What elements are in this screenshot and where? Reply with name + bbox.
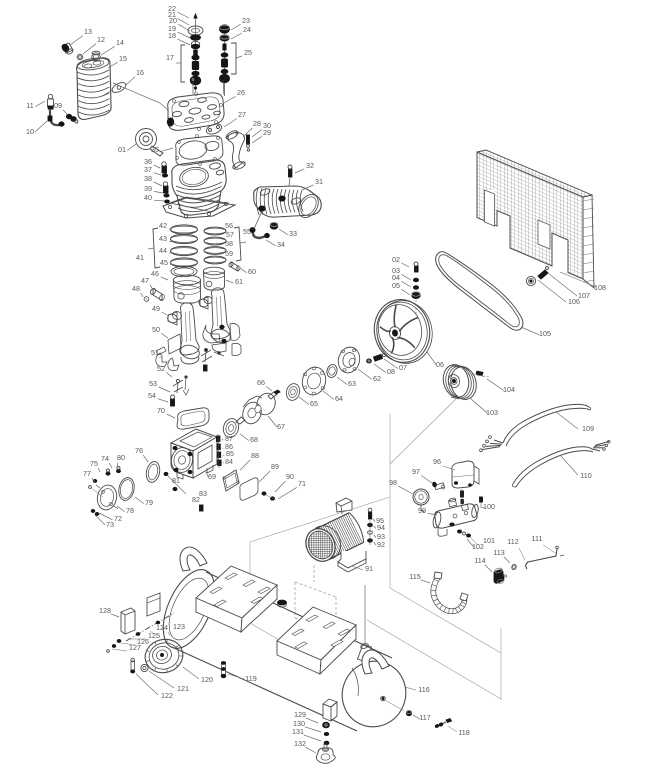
svg-text:50: 50 — [152, 325, 160, 334]
svg-text:80: 80 — [117, 453, 125, 462]
svg-text:101: 101 — [483, 536, 495, 545]
svg-text:113: 113 — [493, 548, 504, 557]
svg-text:122: 122 — [161, 691, 173, 700]
svg-text:46: 46 — [151, 269, 159, 278]
svg-text:119: 119 — [245, 674, 256, 683]
svg-text:71: 71 — [298, 479, 306, 488]
svg-text:61: 61 — [235, 277, 243, 286]
svg-text:10: 10 — [26, 127, 34, 136]
svg-text:116: 116 — [418, 685, 429, 694]
svg-text:100: 100 — [483, 502, 495, 511]
svg-text:72: 72 — [114, 514, 122, 523]
svg-text:81: 81 — [172, 476, 180, 485]
svg-text:98: 98 — [389, 478, 397, 487]
svg-text:92: 92 — [377, 540, 385, 549]
svg-text:07: 07 — [399, 363, 407, 372]
svg-text:39: 39 — [144, 184, 152, 193]
svg-text:55: 55 — [243, 227, 251, 236]
svg-text:118: 118 — [458, 728, 469, 737]
svg-text:35: 35 — [151, 145, 159, 154]
svg-text:78: 78 — [126, 506, 134, 515]
svg-text:11: 11 — [26, 101, 33, 110]
svg-text:89: 89 — [271, 462, 279, 471]
svg-text:38: 38 — [144, 174, 152, 183]
svg-text:56: 56 — [225, 221, 233, 230]
svg-text:18: 18 — [168, 31, 176, 40]
svg-text:12: 12 — [97, 35, 105, 44]
svg-text:29: 29 — [263, 128, 271, 137]
svg-text:17: 17 — [166, 53, 174, 62]
svg-text:91: 91 — [365, 564, 373, 573]
svg-text:104: 104 — [503, 385, 515, 394]
svg-text:121: 121 — [177, 684, 189, 693]
svg-text:53: 53 — [149, 379, 157, 388]
svg-text:09: 09 — [54, 101, 62, 110]
svg-text:34: 34 — [277, 240, 285, 249]
svg-text:123: 123 — [173, 622, 185, 631]
svg-text:51: 51 — [151, 348, 159, 357]
svg-text:84: 84 — [225, 457, 233, 466]
svg-text:125: 125 — [148, 631, 160, 640]
svg-text:73: 73 — [106, 520, 114, 529]
svg-text:16: 16 — [136, 68, 144, 77]
svg-text:27: 27 — [238, 110, 246, 119]
svg-text:31: 31 — [315, 177, 323, 186]
svg-text:52: 52 — [157, 364, 165, 373]
svg-text:26: 26 — [237, 88, 245, 97]
svg-text:37: 37 — [144, 165, 152, 174]
svg-text:74: 74 — [101, 454, 109, 463]
svg-text:65: 65 — [310, 399, 318, 408]
svg-text:88: 88 — [251, 451, 259, 460]
svg-text:114: 114 — [474, 556, 485, 565]
svg-text:110: 110 — [580, 471, 591, 480]
svg-text:02: 02 — [392, 255, 400, 264]
svg-text:112: 112 — [507, 537, 518, 546]
svg-text:49: 49 — [152, 304, 160, 313]
svg-text:58: 58 — [225, 239, 233, 248]
svg-text:99: 99 — [418, 506, 426, 515]
svg-text:68: 68 — [250, 435, 258, 444]
svg-text:01: 01 — [118, 145, 126, 154]
svg-text:77: 77 — [83, 469, 91, 478]
svg-text:127: 127 — [129, 643, 141, 652]
svg-text:43: 43 — [159, 234, 167, 243]
svg-text:13: 13 — [84, 27, 92, 36]
svg-text:69: 69 — [208, 472, 216, 481]
svg-text:06: 06 — [436, 360, 444, 369]
svg-text:23: 23 — [242, 16, 250, 25]
svg-text:25: 25 — [244, 48, 252, 57]
svg-text:102: 102 — [472, 542, 484, 551]
svg-text:45: 45 — [160, 258, 168, 267]
svg-text:96: 96 — [433, 457, 441, 466]
svg-text:94: 94 — [377, 523, 385, 532]
svg-text:64: 64 — [335, 394, 343, 403]
svg-text:60: 60 — [248, 267, 256, 276]
svg-text:08: 08 — [387, 367, 395, 376]
svg-text:90: 90 — [286, 472, 294, 481]
svg-text:75: 75 — [90, 459, 98, 468]
svg-text:105: 105 — [539, 329, 551, 338]
svg-text:128: 128 — [99, 606, 111, 615]
svg-text:62: 62 — [373, 374, 381, 383]
svg-text:05: 05 — [392, 281, 400, 290]
svg-text:66: 66 — [257, 378, 265, 387]
svg-text:41: 41 — [136, 253, 144, 262]
svg-text:54: 54 — [148, 391, 156, 400]
svg-text:44: 44 — [159, 246, 167, 255]
svg-text:108: 108 — [594, 283, 606, 292]
svg-text:120: 120 — [201, 675, 213, 684]
svg-text:79: 79 — [145, 498, 153, 507]
svg-text:63: 63 — [348, 379, 356, 388]
svg-text:42: 42 — [159, 221, 167, 230]
svg-text:24: 24 — [243, 25, 251, 34]
svg-text:67: 67 — [277, 422, 285, 431]
svg-text:109: 109 — [582, 424, 594, 433]
svg-text:129: 129 — [294, 710, 306, 719]
svg-text:57: 57 — [226, 230, 234, 239]
svg-text:33: 33 — [289, 229, 297, 238]
svg-text:111: 111 — [532, 534, 543, 543]
svg-text:103: 103 — [486, 408, 498, 417]
svg-text:48: 48 — [132, 284, 140, 293]
svg-text:32: 32 — [306, 161, 314, 170]
svg-text:47: 47 — [141, 276, 149, 285]
svg-text:97: 97 — [412, 467, 420, 476]
svg-text:117: 117 — [419, 713, 430, 722]
svg-text:76: 76 — [135, 446, 143, 455]
svg-text:14: 14 — [116, 38, 124, 47]
svg-text:132: 132 — [294, 739, 306, 748]
svg-text:131: 131 — [292, 727, 304, 736]
svg-text:70: 70 — [157, 406, 165, 415]
svg-text:106: 106 — [568, 297, 580, 306]
svg-text:83: 83 — [199, 489, 207, 498]
svg-text:28: 28 — [253, 119, 261, 128]
svg-text:59: 59 — [225, 249, 233, 258]
svg-text:115: 115 — [409, 572, 420, 581]
svg-text:40: 40 — [144, 193, 152, 202]
svg-text:15: 15 — [119, 54, 127, 63]
